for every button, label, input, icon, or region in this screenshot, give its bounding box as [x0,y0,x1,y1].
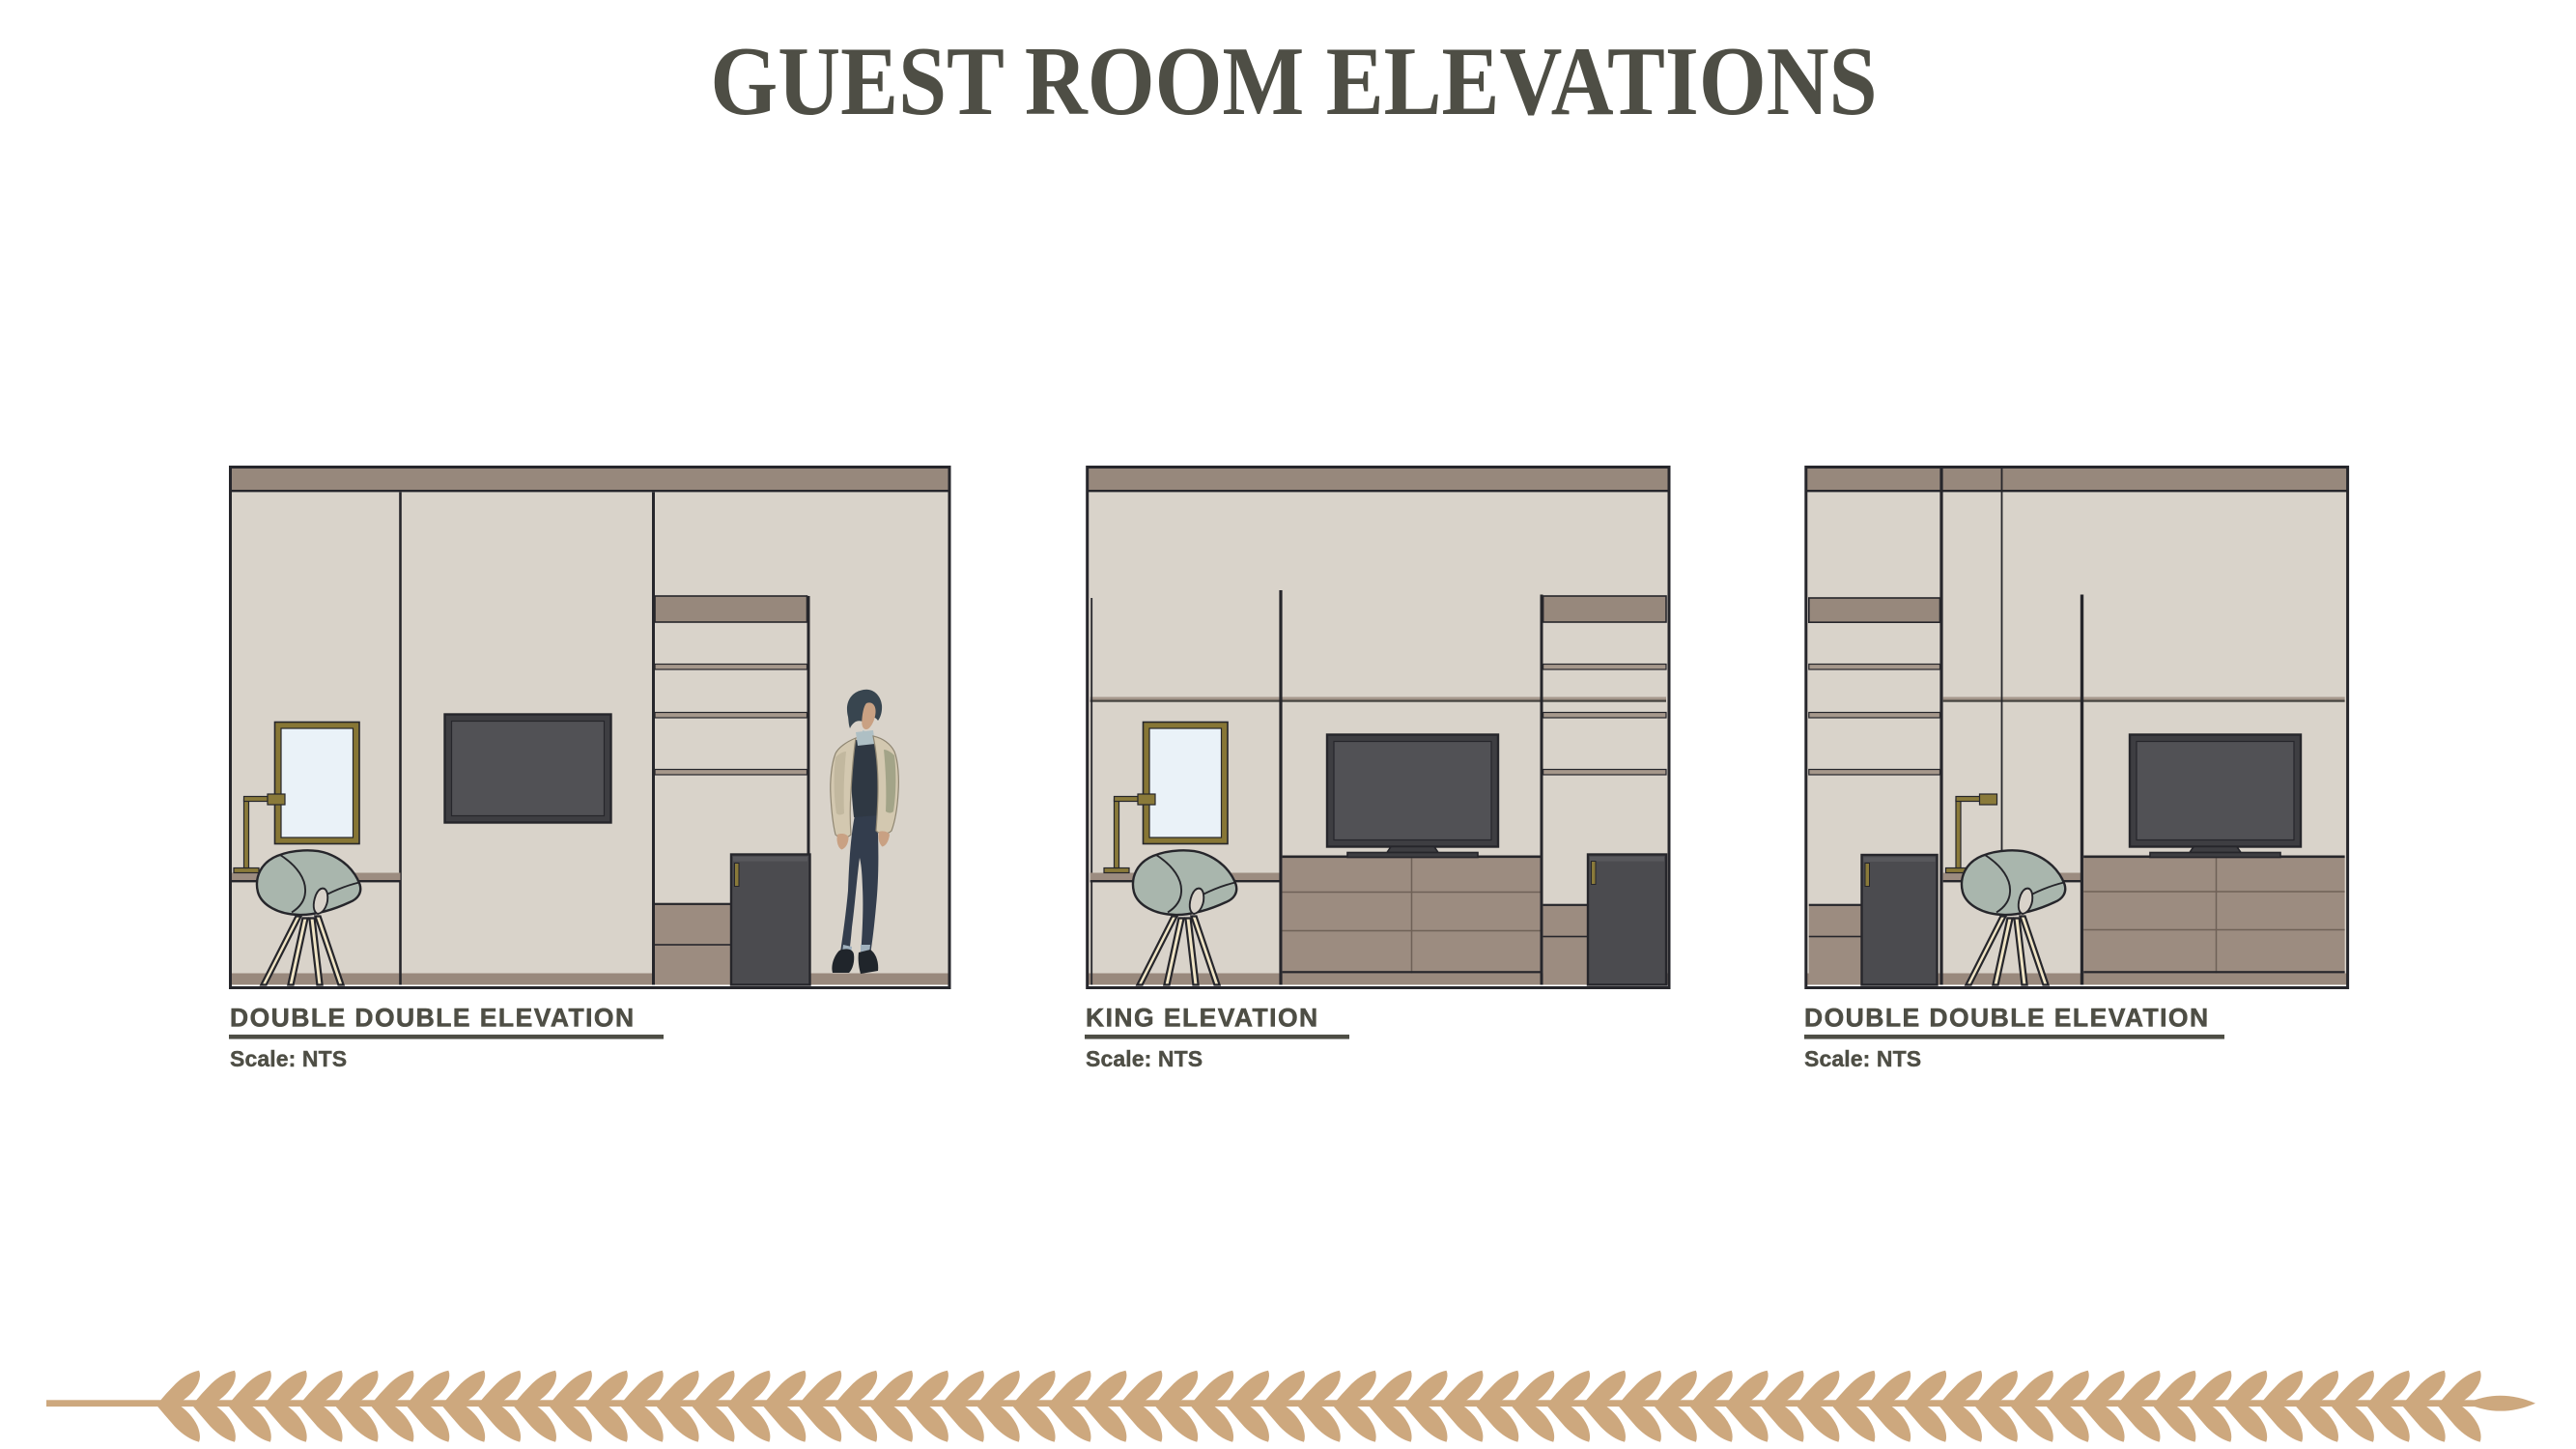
svg-text:DOUBLE DOUBLE ELEVATION: DOUBLE DOUBLE ELEVATION [1804,1004,2210,1033]
svg-text:DOUBLE DOUBLE ELEVATION: DOUBLE DOUBLE ELEVATION [230,1004,636,1033]
svg-text:Scale: NTS: Scale: NTS [1086,1046,1203,1071]
svg-text:GUEST ROOM ELEVATIONS: GUEST ROOM ELEVATIONS [710,26,1877,136]
svg-text:KING ELEVATION: KING ELEVATION [1086,1004,1319,1033]
svg-text:Scale: NTS: Scale: NTS [230,1046,347,1071]
svg-text:Scale: NTS: Scale: NTS [1804,1046,1921,1071]
